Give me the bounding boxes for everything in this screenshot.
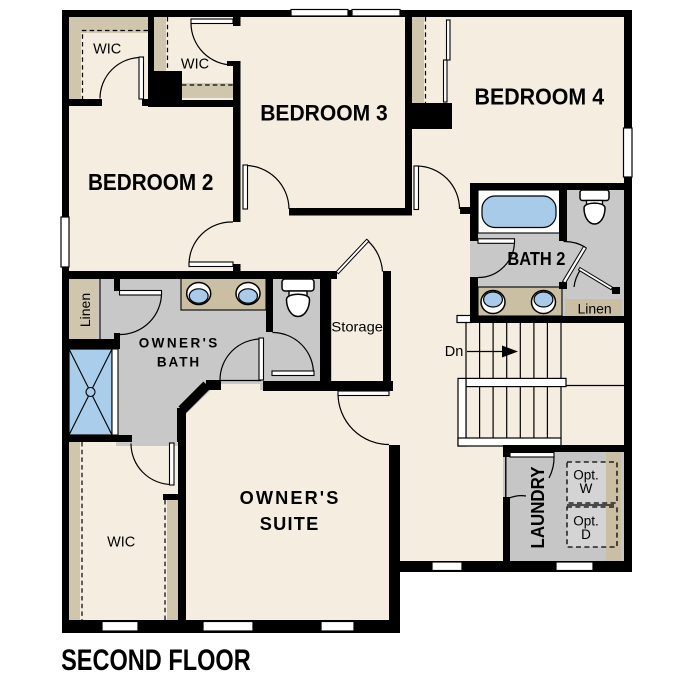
svg-text:BEDROOM 4: BEDROOM 4	[475, 84, 605, 110]
svg-text:Dn: Dn	[445, 344, 464, 360]
svg-text:BEDROOM 2: BEDROOM 2	[88, 169, 214, 195]
svg-text:LAUNDRY: LAUNDRY	[527, 466, 548, 549]
svg-text:WIC: WIC	[93, 42, 121, 58]
svg-text:BATH 2: BATH 2	[507, 249, 565, 269]
svg-text:SUITE: SUITE	[260, 514, 319, 534]
svg-text:W: W	[580, 481, 593, 496]
svg-text:Storage: Storage	[331, 319, 383, 334]
svg-text:WIC: WIC	[107, 534, 135, 550]
svg-text:Linen: Linen	[577, 301, 611, 317]
svg-text:WIC: WIC	[181, 57, 209, 73]
svg-text:Linen: Linen	[77, 293, 93, 327]
svg-text:BEDROOM 3: BEDROOM 3	[260, 100, 388, 125]
svg-text:SECOND FLOOR: SECOND FLOOR	[61, 644, 251, 677]
svg-text:D: D	[581, 527, 591, 542]
